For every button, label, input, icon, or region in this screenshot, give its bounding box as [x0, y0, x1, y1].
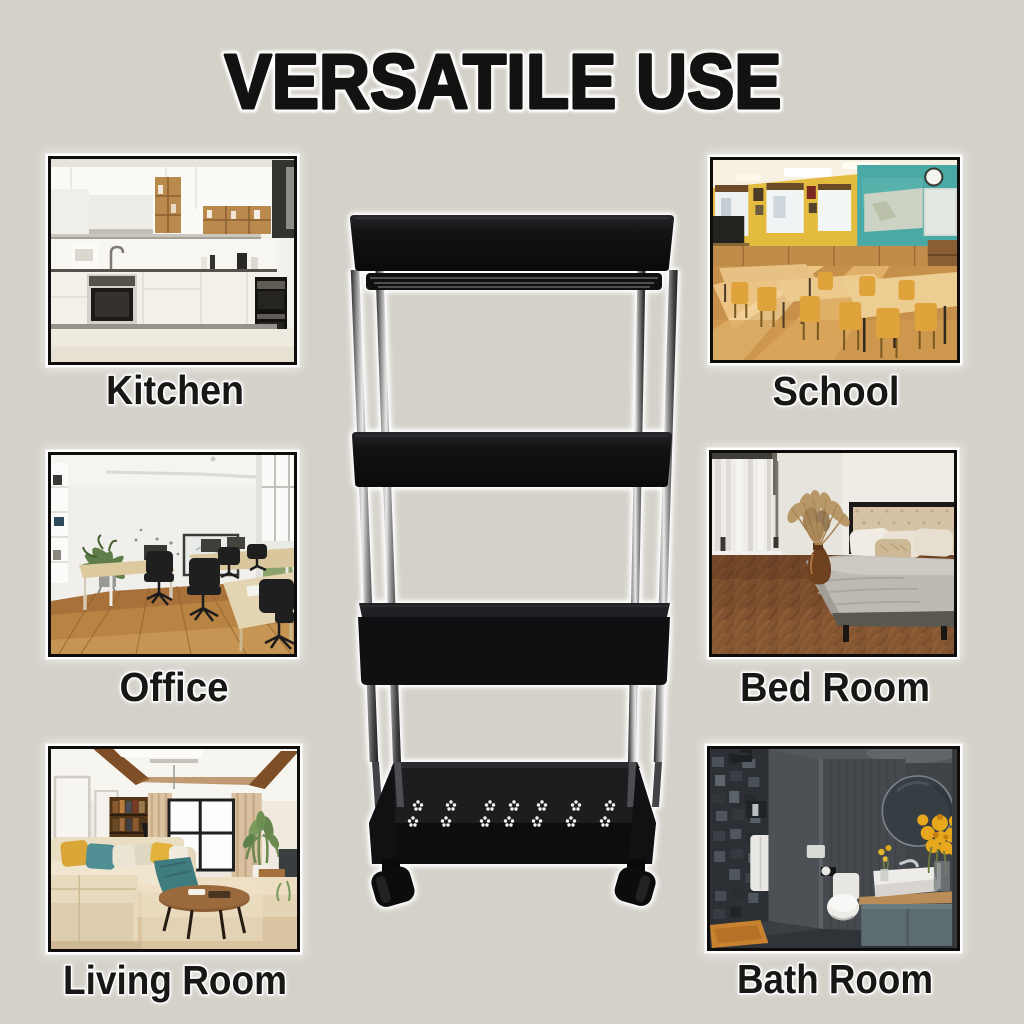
svg-text:Bath Room: Bath Room	[737, 956, 933, 1002]
svg-text:Office: Office	[120, 664, 229, 710]
svg-text:School: School	[773, 368, 900, 414]
svg-text:Bed Room: Bed Room	[740, 664, 930, 710]
svg-text:VERSATILE USE: VERSATILE USE	[225, 39, 782, 125]
svg-text:Kitchen: Kitchen	[106, 367, 244, 413]
svg-text:Living Room: Living Room	[63, 957, 287, 1003]
